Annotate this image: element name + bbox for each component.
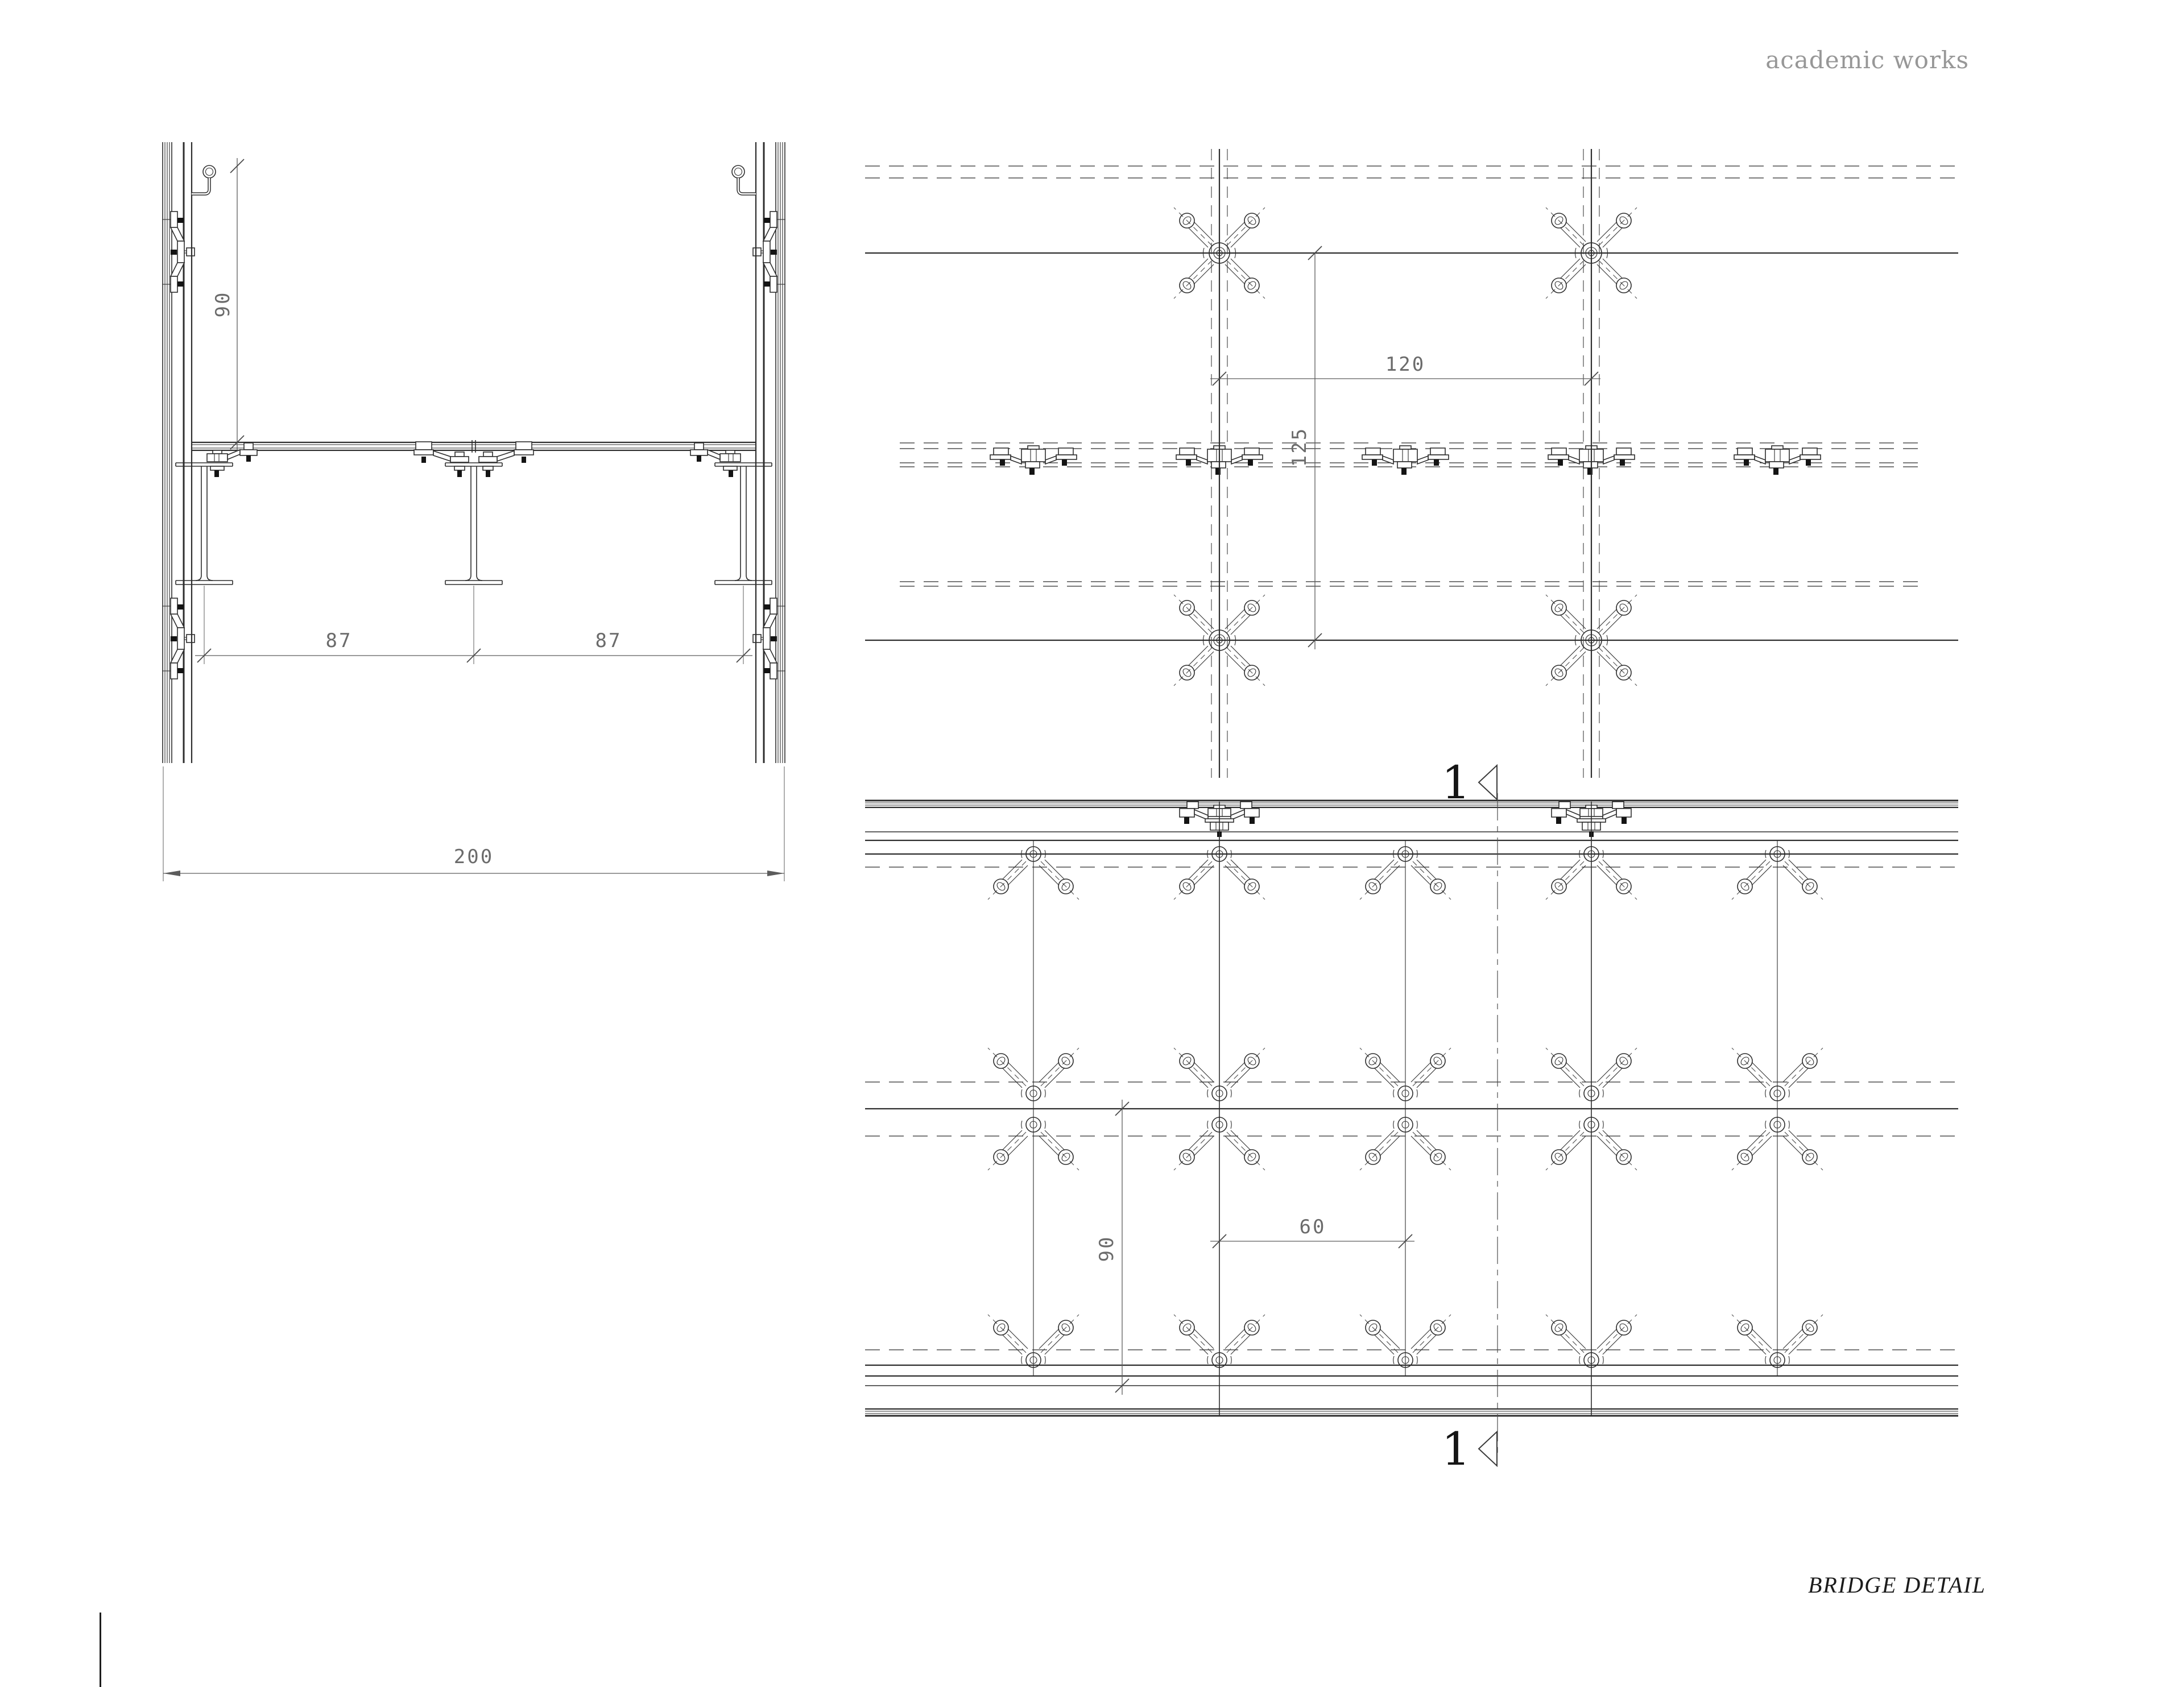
section-cut-triangle-icon [1479,1432,1497,1466]
dim-deck-depth: 90 [1095,1100,1129,1395]
dim-text-200: 200 [454,845,494,868]
drawing-sheet: academic works [0,0,2184,1687]
sheet-title: BRIDGE DETAIL [1808,1572,1986,1598]
deck-clamp-plan [1362,446,1449,475]
centre-beam-clamp [414,442,533,477]
dim-text-87-right: 87 [595,629,622,652]
section-cut-triangle-icon [1479,765,1497,799]
dim-text-90: 90 [212,291,234,318]
section-marker-bottom: 1 [1442,1423,1497,1475]
section-marker-label: 1 [1442,1423,1471,1475]
dim-text-120: 120 [1385,353,1425,376]
centre-beam [445,463,502,664]
dim-deck-width: 200 [163,766,784,881]
dim-text-87-left: 87 [326,629,353,652]
handrail-eye-right [732,165,756,194]
brand-text: academic works [1765,46,1969,74]
page-edge-mark [100,1613,101,1687]
deck-clamp-plan [1734,446,1821,475]
dim-text-60: 60 [1300,1216,1326,1238]
dim-rail-height: 90 [212,158,244,451]
dim-fitting-spacing: 60 [1210,1216,1414,1248]
section-drawing: 90 87 87 200 [162,142,785,881]
dim-panel-spacing: 120 [1210,353,1600,386]
dim-text-90-plan: 90 [1095,1236,1118,1262]
elevation-drawing: 120 125 [865,149,1958,778]
dim-panel-height: 125 [1288,246,1322,649]
handrail-eye-left [192,165,216,194]
deck-glass [192,440,756,453]
plan-drawing: 60 90 [865,793,1958,1687]
dim-text-125: 125 [1288,427,1311,467]
deck-clamp-plan [990,446,1077,475]
